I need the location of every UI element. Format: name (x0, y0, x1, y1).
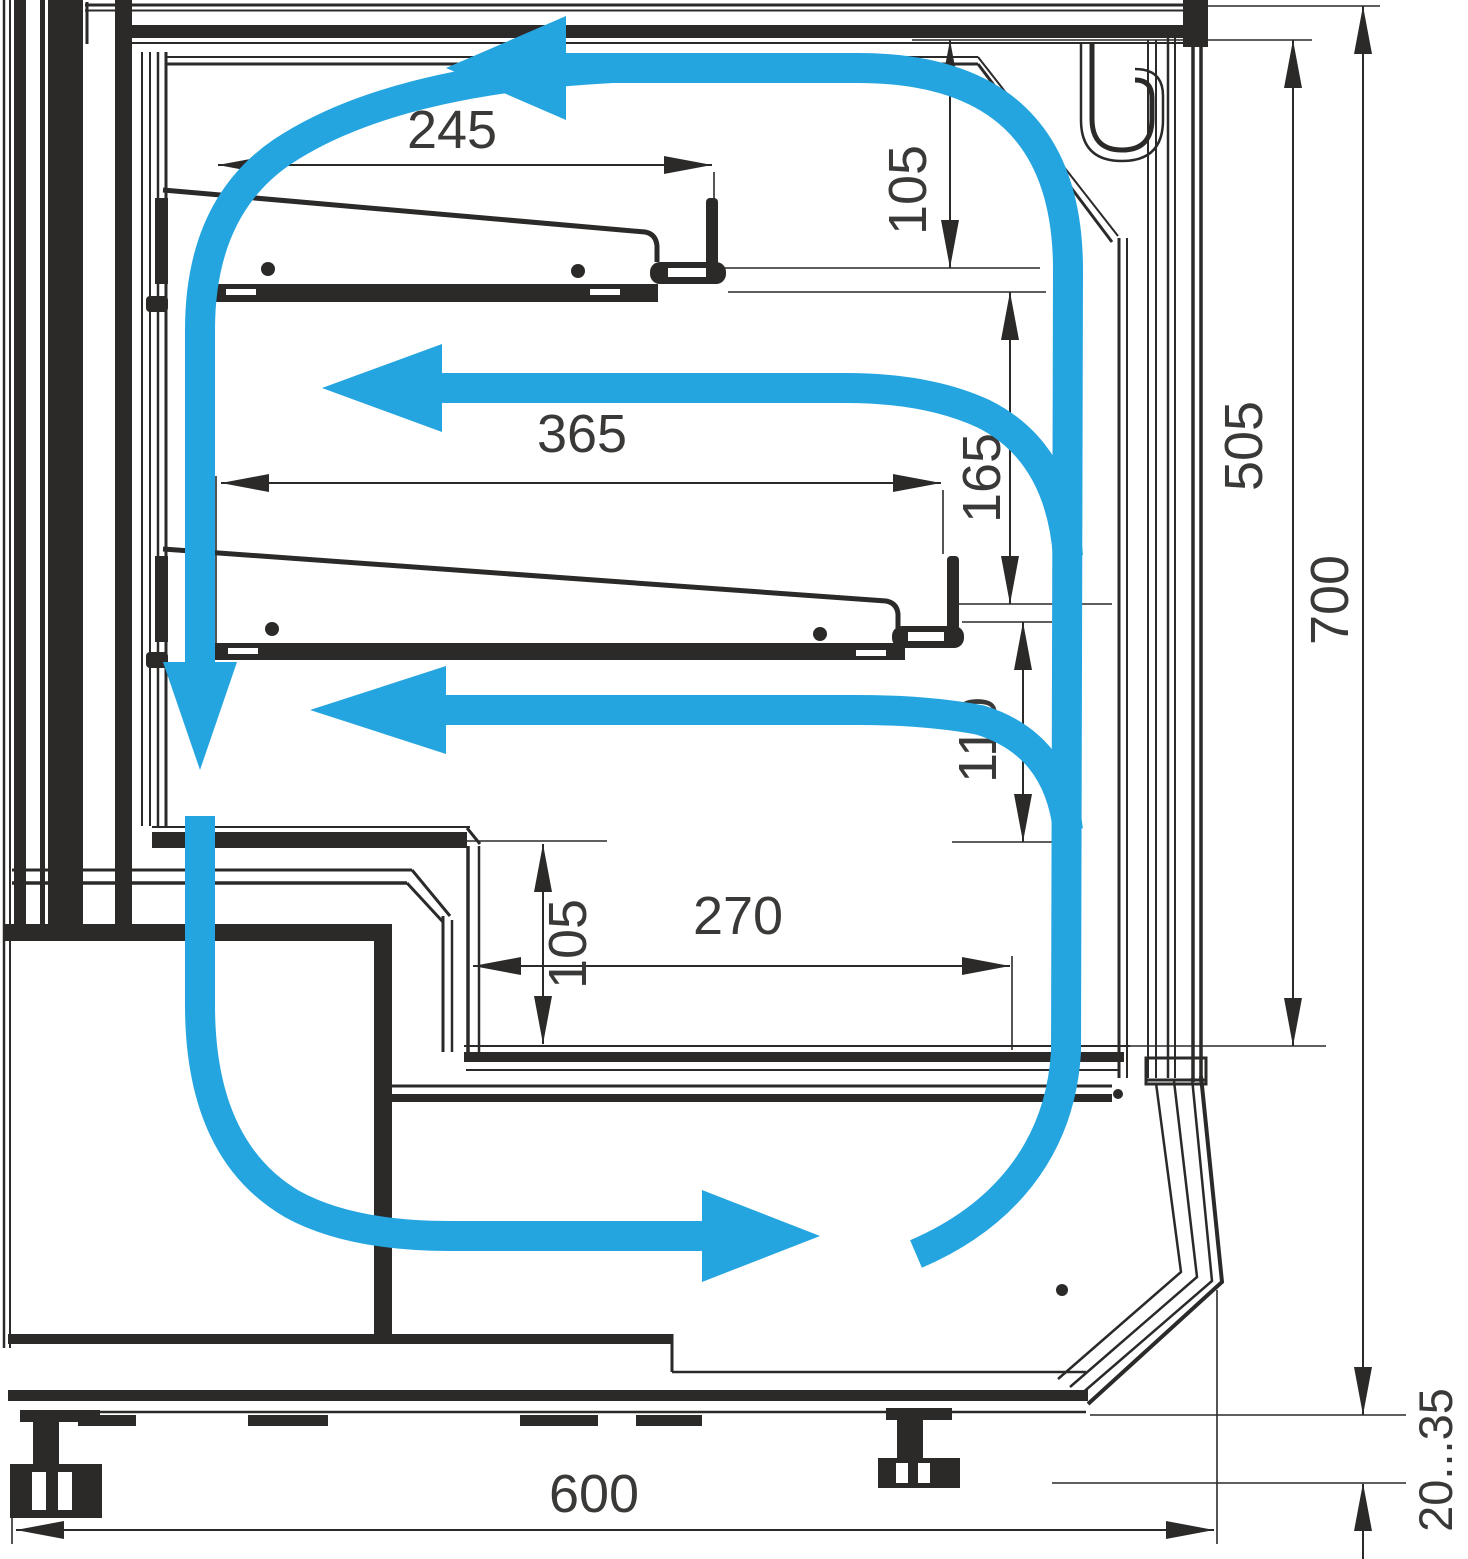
shelf-wall-bracket (155, 556, 168, 642)
dim-arrowhead (1354, 6, 1372, 54)
dim-arrowhead (534, 844, 552, 892)
dim-label: 600 (549, 1464, 639, 1524)
adjustable-foot-left (10, 1410, 102, 1518)
dim-arrowhead (1001, 556, 1019, 604)
dim-arrowhead (893, 474, 941, 492)
display-deck (392, 1046, 1130, 1102)
section-drawing: 245 365 270 105 165 110 (0, 0, 1468, 1559)
shelf-front-stop (706, 198, 718, 266)
dim-label: 700 (1300, 555, 1360, 645)
dim-700: 700 (1090, 6, 1406, 1415)
dim-600: 600 (12, 1290, 1217, 1544)
front-glass (1146, 32, 1206, 1084)
dim-arrowhead (1284, 998, 1302, 1046)
back-wall (4, 0, 168, 1348)
canopy-hook-inner (1092, 44, 1152, 150)
dim-arrowhead (1284, 40, 1302, 88)
shelf-wall-bracket (155, 198, 168, 284)
dim-arrowhead (1166, 1521, 1214, 1539)
dim-foot-height: 20...35 (1052, 1388, 1462, 1559)
dim-arrowhead (1014, 622, 1032, 670)
dim-arrowhead (221, 474, 269, 492)
middle-shelf (163, 549, 964, 660)
dim-arrowhead (16, 1521, 64, 1539)
shelf-front-stop (947, 556, 959, 630)
dim-label: 20...35 (1409, 1388, 1462, 1532)
dim-365: 365 (216, 404, 943, 644)
front-bumper (1056, 1076, 1222, 1404)
airflow-arrowhead-down (163, 662, 237, 770)
dim-label: 270 (693, 886, 783, 946)
dim-label: 105 (538, 899, 598, 989)
adjustable-foot-right (878, 1408, 960, 1488)
dim-arrowhead (1354, 1483, 1372, 1531)
dim-label: 505 (1214, 401, 1274, 491)
drawing-page: 245 365 270 105 165 110 (0, 0, 1468, 1559)
dim-arrowhead (941, 220, 959, 268)
dim-105-well: 105 (467, 841, 607, 1044)
dim-arrowhead (664, 156, 712, 174)
dim-505: 505 (1130, 40, 1326, 1046)
dim-arrowhead (1014, 794, 1032, 842)
dim-label: 165 (952, 433, 1012, 523)
dim-arrowhead (534, 996, 552, 1044)
airflow-arrowhead-low-left (310, 666, 446, 754)
airflow-arrowhead-right (702, 1190, 820, 1282)
dim-arrowhead (962, 957, 1010, 975)
dim-arrowhead (1001, 292, 1019, 340)
airflow-front-loop (564, 68, 1068, 1254)
dim-label: 105 (878, 145, 938, 235)
dim-label: 365 (537, 404, 627, 464)
airflow-arrowhead-mid-left (322, 344, 442, 432)
dim-arrowhead (1354, 1367, 1372, 1415)
